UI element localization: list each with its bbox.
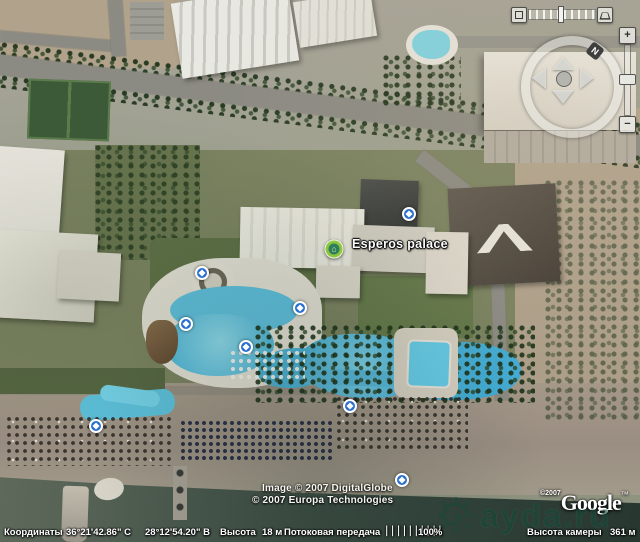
photo-marker-diamond-icon	[242, 343, 249, 350]
white-umbrellas	[230, 350, 305, 382]
photo-marker[interactable]	[293, 301, 307, 315]
tennis-courts	[27, 79, 111, 142]
topdown-view-icon	[515, 11, 523, 19]
photo-marker-diamond-icon	[182, 320, 189, 327]
photo-marker-diamond-icon	[198, 269, 205, 276]
beach-umbrellas	[180, 420, 332, 462]
photo-marker-diamond-icon	[296, 304, 303, 311]
zoom-slider-handle[interactable]	[619, 74, 636, 85]
photo-marker-diamond-icon	[398, 476, 405, 483]
cone-roof-building	[146, 320, 178, 364]
zoom-in-button[interactable]: +	[619, 27, 636, 44]
photo-marker[interactable]	[343, 399, 357, 413]
pier	[173, 466, 187, 520]
hotel-building	[0, 146, 65, 235]
roof-marking	[475, 223, 532, 254]
hotel-marker[interactable]: ⌂	[325, 240, 344, 259]
zoom-out-button[interactable]: −	[619, 116, 636, 133]
pan-down-arrow[interactable]	[552, 90, 574, 104]
google-earth-window: ⌂ Esperos palace N + − Image © 2007 Digi…	[0, 0, 640, 542]
swimming-pool	[412, 30, 450, 59]
photo-marker[interactable]	[179, 317, 193, 331]
lodging-icon: ⌂	[329, 244, 340, 255]
imagery-copyright-line1: Image © 2007 DigitalGlobe	[262, 483, 393, 494]
photo-marker-diamond-icon	[405, 210, 412, 217]
photo-marker[interactable]	[195, 266, 209, 280]
photo-marker[interactable]	[89, 419, 103, 433]
north-label: N	[589, 45, 600, 57]
google-wordmark: Google	[561, 490, 621, 515]
trees	[545, 180, 640, 420]
photo-marker-diamond-icon	[92, 422, 99, 429]
tilt-horizon-button[interactable]	[597, 7, 613, 23]
google-copyright-year: ©2007	[540, 490, 561, 497]
google-logo: ©2007Google™	[540, 490, 629, 516]
pier	[61, 486, 89, 542]
swimming-pool	[406, 339, 452, 389]
placemark-label[interactable]: Esperos palace	[352, 237, 448, 251]
photo-marker-diamond-icon	[346, 402, 353, 409]
tilt-slider-handle[interactable]	[558, 6, 564, 23]
pan-right-arrow[interactable]	[580, 67, 594, 89]
compass-center-knob[interactable]	[556, 71, 572, 87]
parking-lot	[130, 2, 164, 40]
horizon-view-icon	[599, 12, 610, 19]
trademark-symbol: ™	[621, 490, 629, 499]
photo-marker[interactable]	[239, 340, 253, 354]
imagery-copyright-line2: © 2007 Europa Technologies	[252, 495, 393, 506]
hotel-wing	[57, 250, 121, 301]
tilt-topdown-button[interactable]	[511, 7, 527, 23]
photo-marker[interactable]	[402, 207, 416, 221]
pan-left-arrow[interactable]	[532, 67, 546, 89]
photo-marker[interactable]	[395, 473, 409, 487]
pan-up-arrow[interactable]	[552, 56, 574, 70]
hotel-annex	[316, 266, 361, 299]
